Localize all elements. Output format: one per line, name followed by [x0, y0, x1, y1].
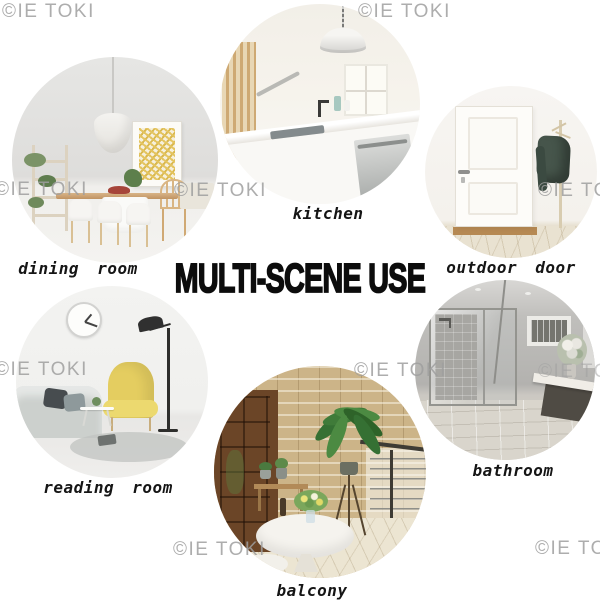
plant-pot — [260, 470, 271, 479]
watermark-mid1-col1: ©IE TOKI — [174, 180, 267, 202]
stair-handrail — [256, 71, 300, 97]
kitchen-photo — [220, 4, 420, 204]
armchair-leg — [149, 417, 151, 431]
flower-vase — [306, 510, 315, 523]
dishwasher — [354, 134, 417, 198]
fruit-bowl — [108, 186, 130, 194]
counter-bottle — [344, 100, 350, 111]
faucet — [318, 100, 321, 117]
dining-chair — [97, 201, 122, 223]
main-title-text: MULTI-SCENE USE — [175, 258, 425, 299]
glass-reflection — [226, 450, 244, 494]
reading-room-photo — [16, 286, 208, 478]
glass-shower — [429, 308, 517, 406]
watermark-mid2-col3: ©IE TOKI — [538, 361, 600, 383]
area-rug — [70, 432, 188, 462]
kitchen-window — [344, 64, 388, 116]
label-outdoor-door: outdoor door — [446, 258, 576, 277]
door-panel-top — [468, 117, 518, 170]
watermark-mid2-col2: ©IE TOKI — [354, 360, 447, 382]
label-dining-room: dining room — [18, 259, 137, 278]
watermark-mid1-col3: ©IE TOKI — [538, 180, 600, 202]
watermark-mid1-col0: ©IE TOKI — [0, 179, 88, 201]
label-reading-room: reading room — [43, 478, 173, 497]
dining-chair — [68, 199, 93, 221]
flower-bouquet — [294, 490, 328, 512]
label-kitchen: kitchen — [293, 204, 364, 223]
door-keyplate — [461, 177, 465, 183]
dome-pendant-lamp — [320, 28, 366, 53]
floor-lamp-base — [158, 429, 178, 432]
shelf-plant — [24, 153, 46, 167]
label-balcony: balcony — [277, 581, 348, 600]
door-handle — [458, 170, 470, 174]
door-panel-bottom — [468, 182, 518, 215]
door-mat — [453, 227, 537, 235]
bench-leg — [258, 489, 261, 511]
pendant-lamp — [94, 113, 132, 153]
shower-wall-tiles — [435, 314, 477, 400]
product-collage: ©IE TOKI ©IE TOKI ©IE TOKI ©IE TOKI ©IE … — [0, 0, 600, 600]
palm-pot — [340, 462, 358, 475]
plant-pot — [276, 468, 287, 479]
watermark-top-right: ©IE TOKI — [358, 1, 451, 23]
white-door — [455, 106, 533, 227]
outdoor-door-photo — [425, 86, 597, 258]
watermark-mid2-col0: ©IE TOKI — [0, 359, 88, 381]
chair-legs — [71, 221, 90, 243]
wall-clock — [66, 302, 102, 338]
pendant-cord — [112, 57, 114, 115]
floor-lamp-shade — [137, 315, 164, 333]
wall-art — [139, 128, 175, 180]
dining-room-photo — [12, 57, 218, 263]
round-table — [256, 514, 354, 558]
chair-legs — [100, 223, 119, 245]
label-bathroom: bathroom — [472, 461, 553, 480]
plant-stand-leg — [348, 475, 350, 531]
glass-panel-frame — [483, 310, 485, 404]
watermark-top-left: ©IE TOKI — [2, 1, 95, 23]
wine-bottle — [280, 498, 286, 516]
watermark-bottom-left: ©IE TOKI — [173, 539, 266, 561]
clock-minute-hand — [85, 321, 98, 327]
dining-chair — [126, 203, 151, 225]
pendant-chain — [342, 4, 344, 30]
counter-bottle — [334, 96, 341, 111]
table-plant — [92, 397, 101, 406]
wooden-chair-legs — [162, 209, 186, 241]
table-plant — [124, 169, 142, 187]
watermark-bottom-right: ©IE TOKI — [535, 538, 600, 560]
floor-lamp-pole — [167, 328, 170, 430]
dishwasher-handle — [357, 139, 407, 149]
shower-head — [439, 318, 451, 321]
chair-legs — [129, 225, 148, 247]
